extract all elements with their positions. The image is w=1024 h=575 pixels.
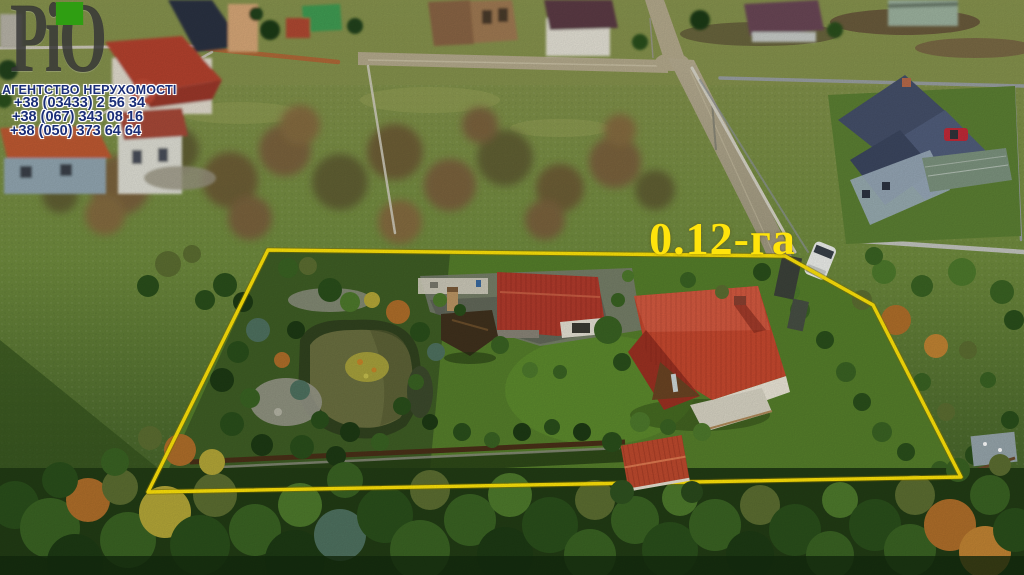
aerial-photo-canvas: РіО АГЕНТСТВО НЕРУХОМОСТІ +38 (03433) 2 …	[0, 0, 1024, 575]
logo-green-block-icon	[56, 2, 83, 25]
agency-phone-3: +38 (050) 373 64 64	[10, 123, 141, 139]
area-size-label: 0.12-га	[640, 212, 805, 265]
